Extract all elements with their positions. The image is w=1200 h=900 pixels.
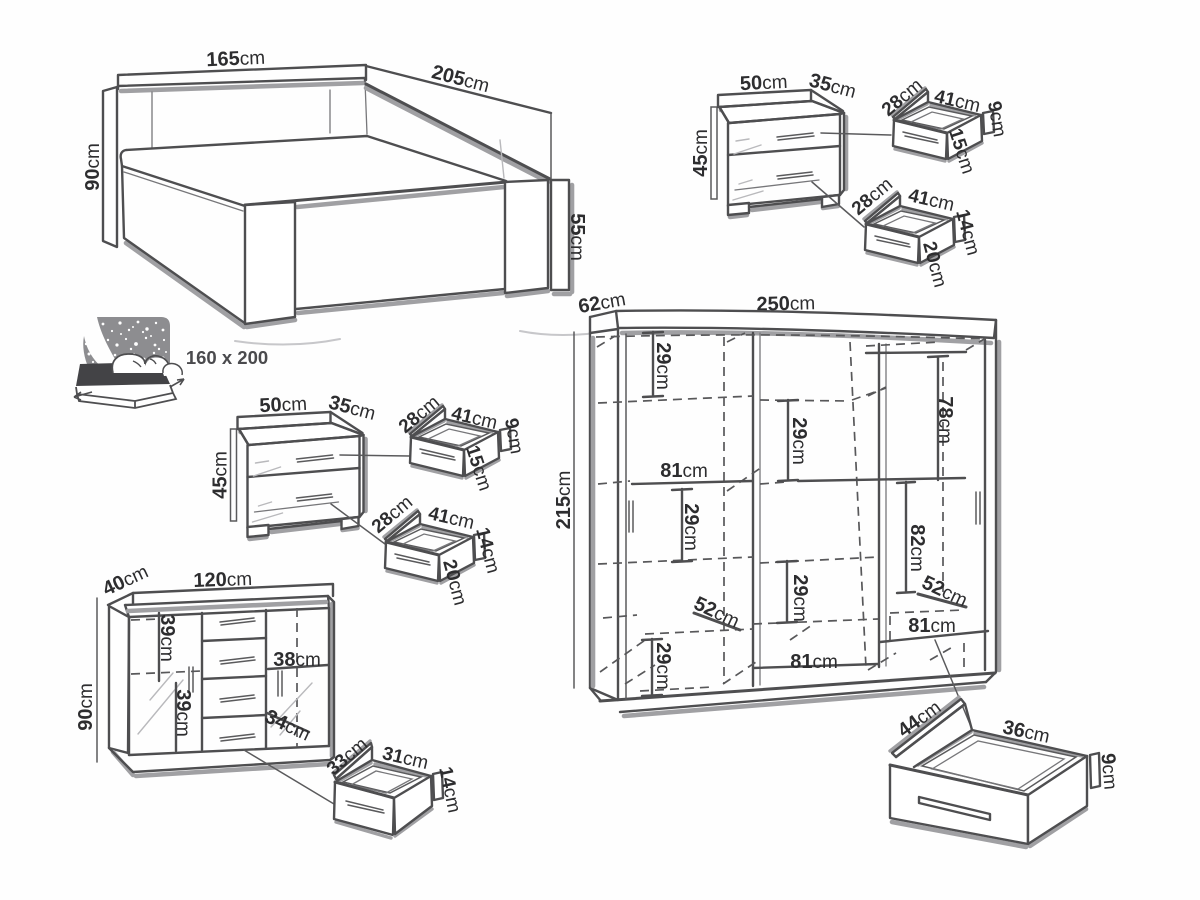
svg-text:29cm: 29cm [789, 574, 811, 622]
svg-text:39cm: 39cm [156, 614, 178, 662]
svg-text:78cm: 78cm [934, 396, 956, 444]
svg-text:81cm: 81cm [660, 460, 708, 482]
svg-text:90cm: 90cm [75, 683, 97, 731]
svg-text:55cm: 55cm [566, 213, 588, 261]
svg-text:81cm: 81cm [908, 615, 956, 637]
svg-text:82cm: 82cm [906, 524, 928, 572]
svg-text:165cm: 165cm [206, 47, 266, 72]
svg-text:29cm: 29cm [788, 417, 810, 465]
svg-text:9cm: 9cm [1096, 752, 1121, 790]
svg-text:81cm: 81cm [790, 651, 838, 673]
svg-text:215cm: 215cm [553, 471, 575, 530]
svg-text:29cm: 29cm [652, 342, 674, 390]
svg-text:38cm: 38cm [273, 649, 321, 671]
svg-text:29cm: 29cm [652, 642, 674, 690]
svg-text:39cm: 39cm [172, 689, 194, 737]
svg-text:160 x 200: 160 x 200 [186, 347, 268, 368]
svg-text:120cm: 120cm [193, 568, 252, 592]
svg-text:90cm: 90cm [82, 143, 104, 191]
svg-text:29cm: 29cm [680, 503, 702, 551]
